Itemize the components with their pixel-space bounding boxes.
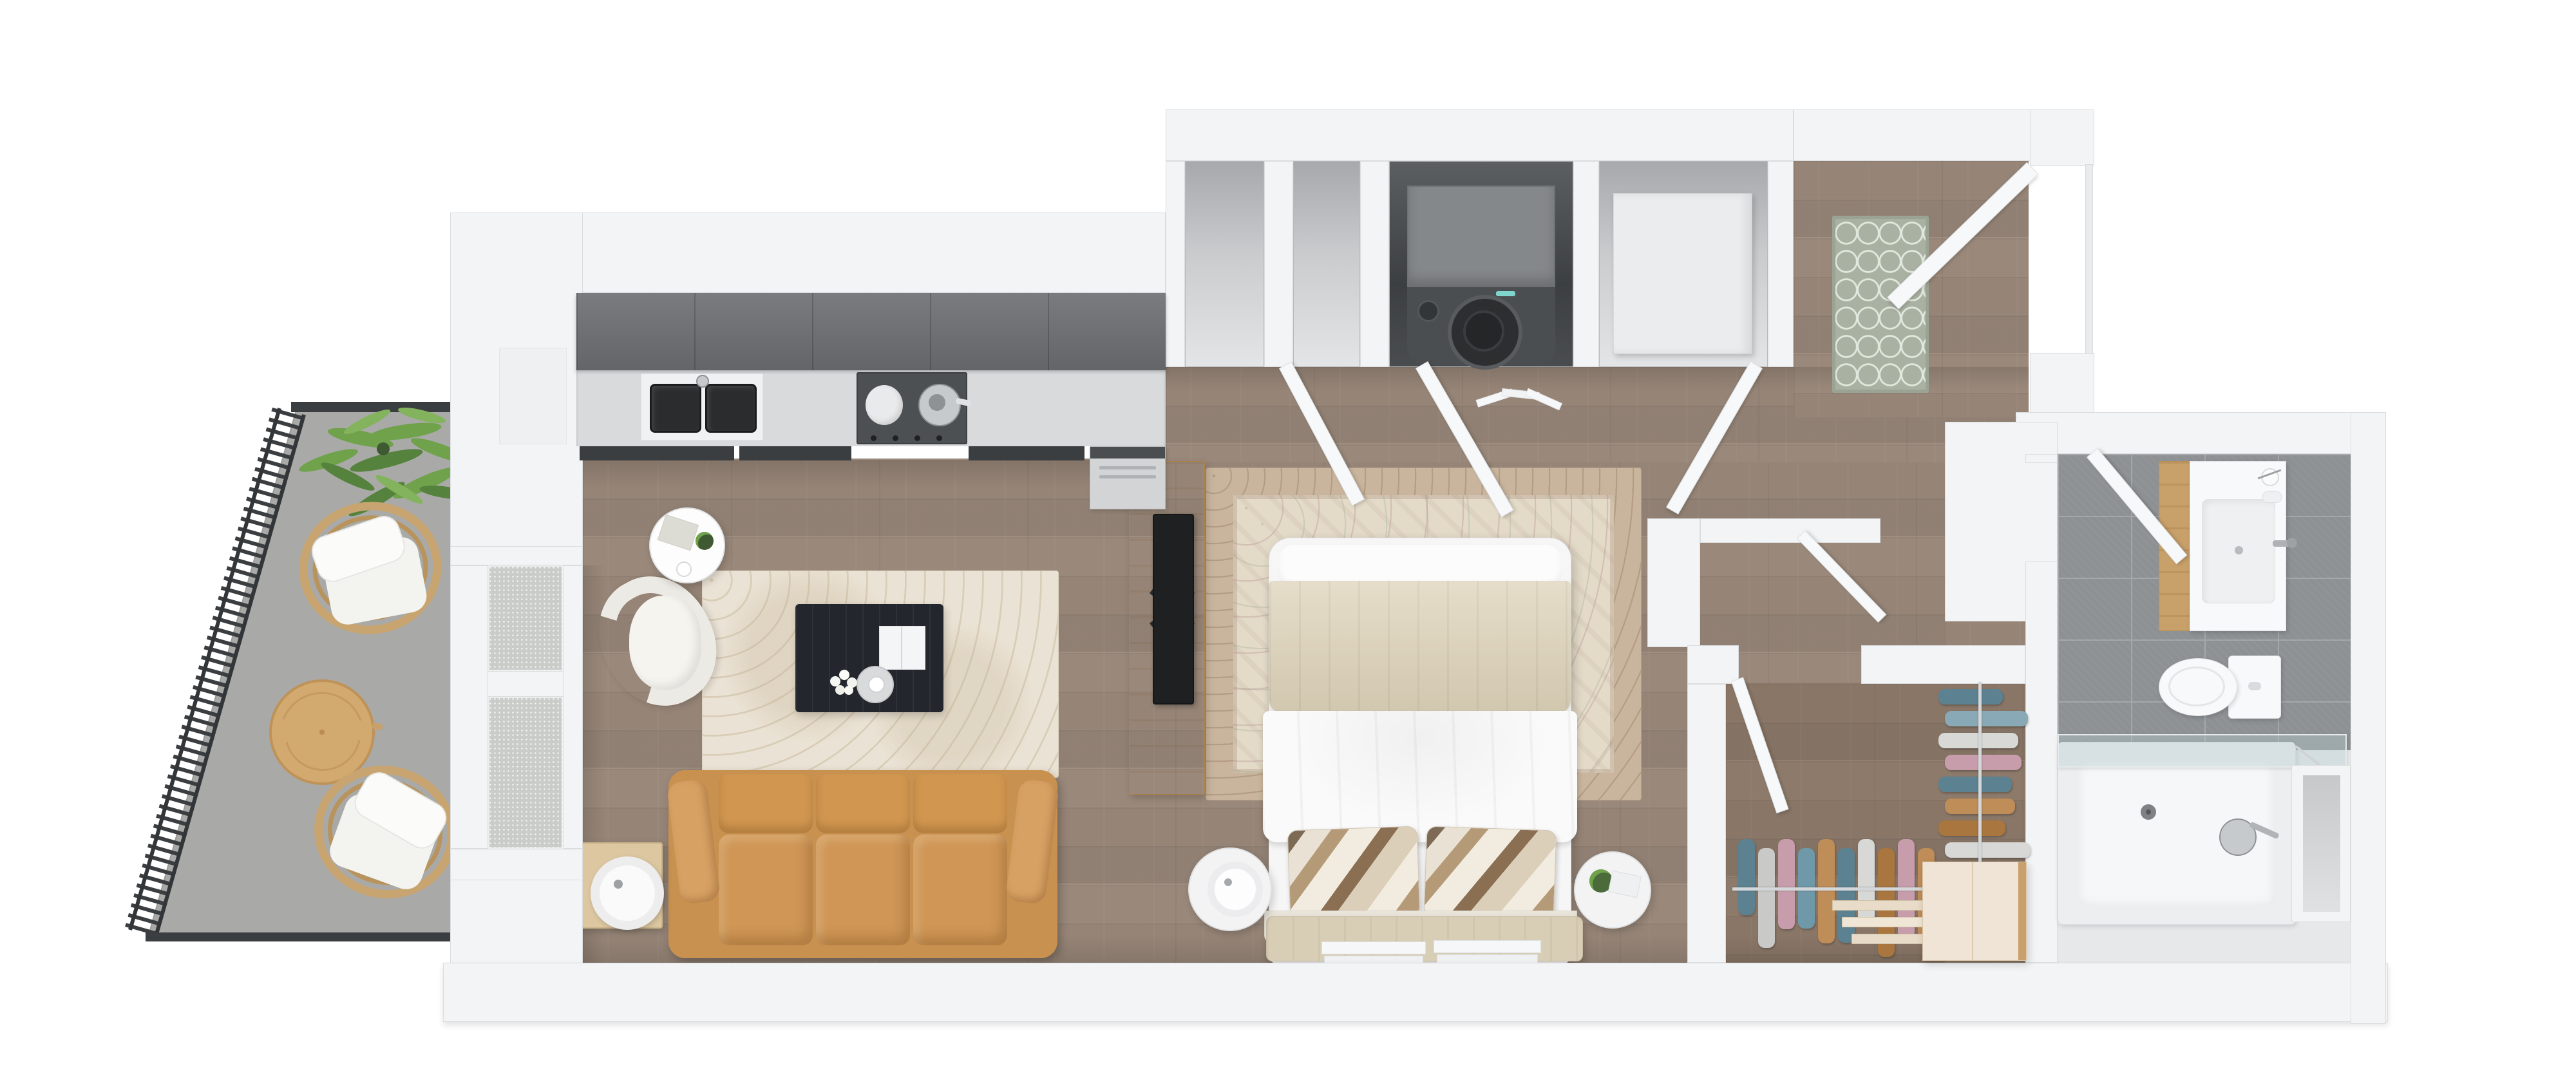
- hanging-garment: [1738, 839, 1755, 915]
- sink-drain: [2235, 546, 2243, 554]
- bathtub: [2058, 742, 2296, 925]
- white-appliance-cabinet: [1613, 193, 1752, 354]
- bed-duvet: [1263, 711, 1577, 842]
- washer-dryer: [1407, 185, 1555, 364]
- hanging-garment: [1938, 689, 2003, 704]
- hanging-garment: [1858, 839, 1875, 924]
- washer-front: [1407, 287, 1555, 364]
- wall-bathroom-top: [2016, 412, 2386, 454]
- floor-plan-canvas: [0, 0, 2576, 1087]
- tv-screen: [1153, 514, 1194, 704]
- wall-west-recess: [499, 348, 567, 444]
- flush-button: [2248, 682, 2261, 690]
- armchair-cushion: [629, 596, 701, 690]
- closet-rail-right: [1978, 683, 1982, 871]
- bed-pillow-right: [1424, 826, 1557, 921]
- window-pane-upper: [488, 565, 563, 671]
- bistro-table: [649, 507, 725, 583]
- wall-west-upper: [450, 213, 583, 565]
- kitchen-toekick-3: [969, 446, 1084, 460]
- bistro-book: [658, 515, 699, 551]
- coffee-table-tray: [857, 666, 894, 703]
- nightstand-left: [1188, 847, 1272, 931]
- front-door-frame: [2085, 164, 2093, 354]
- wall-entry-east-upper: [2030, 109, 2094, 166]
- sofa-seat-cushions: [719, 835, 1007, 945]
- wall-bathroom-east: [2351, 412, 2386, 1024]
- wall-west-lower: [450, 880, 583, 963]
- nightstand-book: [1608, 871, 1642, 898]
- window-sill: [450, 849, 583, 882]
- coffee-table-flowers: [829, 668, 861, 697]
- wall-entry-east-lower: [2030, 353, 2094, 417]
- washer-body: [1407, 185, 1555, 288]
- pier-4: [1768, 161, 1794, 367]
- niche-a: [1185, 161, 1264, 367]
- wall-closet-top-left: [1687, 645, 1739, 684]
- vanity-faucet-base: [2287, 538, 2297, 548]
- nightstand-right: [1574, 851, 1651, 929]
- hanging-garment: [1818, 839, 1835, 943]
- pier-1: [1264, 161, 1293, 367]
- washer-door: [1448, 295, 1522, 370]
- washer-indicator: [1496, 291, 1515, 296]
- sofa-back-cushions: [719, 774, 1007, 833]
- balcony: [26, 386, 515, 979]
- armchair: [602, 575, 713, 707]
- window-head: [450, 546, 583, 565]
- floor-patch-bath-door: [1945, 617, 2025, 649]
- vanity-counter: [2190, 461, 2286, 631]
- hanging-garment: [1945, 842, 2031, 858]
- sofa-arm-pillow-right: [1005, 779, 1060, 905]
- pier-2: [1360, 161, 1389, 367]
- kitchen-cooktop: [857, 372, 967, 444]
- pot: [918, 384, 961, 426]
- kitchen-toekick-1: [580, 446, 734, 460]
- sink-basin-right: [705, 384, 757, 433]
- railing-bottom: [146, 932, 459, 941]
- wall-nook-stub: [1647, 518, 1700, 647]
- wall-window-jamb-right: [563, 565, 583, 849]
- oval-dish: [866, 385, 903, 425]
- nightstand-lamp: [1207, 862, 1263, 917]
- sink-faucet: [696, 375, 709, 388]
- bistro-plant: [696, 532, 714, 550]
- bed-blanket: [1269, 581, 1571, 712]
- teacup: [868, 676, 885, 693]
- pier-0: [1166, 161, 1185, 367]
- hanging-garment: [1945, 711, 2028, 726]
- kitchen-toekick-2: [739, 446, 851, 460]
- table-lamp: [591, 856, 664, 930]
- hanging-garment: [1938, 820, 2005, 836]
- window-pane-lower: [488, 697, 563, 849]
- hanging-garment: [1758, 848, 1775, 948]
- side-table: [575, 842, 663, 929]
- coffee-table: [795, 604, 943, 712]
- ceiling-light: [1473, 381, 1564, 415]
- wall-bottom: [443, 963, 2388, 1022]
- kitchen-upper-cabinets: [576, 293, 1166, 370]
- sofa: [668, 770, 1057, 958]
- closet-rail-bottom: [1732, 887, 1945, 891]
- kitchen-sink-deck: [641, 373, 763, 440]
- soap-dish: [2262, 491, 2282, 503]
- bed: [1269, 538, 1571, 964]
- wall-top-closet-row: [1166, 109, 1794, 161]
- railing-top: [291, 402, 456, 412]
- closet-shoe-shelf-1: [1832, 900, 1930, 911]
- bath-half-wall: [2291, 765, 2351, 922]
- hanging-garment: [1945, 755, 2022, 770]
- washer-knob: [1417, 300, 1439, 322]
- pier-3: [1573, 161, 1599, 367]
- wall-closet-top-right: [1861, 645, 2025, 684]
- wall-closet-west: [1687, 684, 1726, 963]
- toilet-bowl: [2159, 658, 2237, 716]
- wall-window-jamb-left: [450, 565, 488, 849]
- wall-nook-band: [1700, 518, 1880, 543]
- wall-bathroom-west: [2025, 562, 2058, 963]
- closet-dresser: [1922, 862, 2027, 961]
- niche-b: [1293, 161, 1360, 367]
- sofa-arm-pillow-left: [667, 779, 721, 905]
- hanging-garment: [1938, 777, 2012, 792]
- hanging-garment: [1838, 848, 1855, 943]
- hanging-garment: [1778, 839, 1795, 929]
- vanity-sink: [2202, 499, 2275, 603]
- bed-pillow-left: [1287, 826, 1421, 921]
- coffee-table-book: [879, 626, 925, 670]
- kitchen-under-counter-appliance: [1090, 446, 1166, 509]
- shadow-under-kitchen: [583, 460, 1166, 487]
- entry-door-mat: [1832, 216, 1929, 393]
- sink-basin-left: [650, 384, 701, 433]
- bistro-cup: [676, 562, 692, 577]
- tub-drain: [2141, 804, 2156, 820]
- wall-bathroom-west-jamb: [2025, 454, 2058, 463]
